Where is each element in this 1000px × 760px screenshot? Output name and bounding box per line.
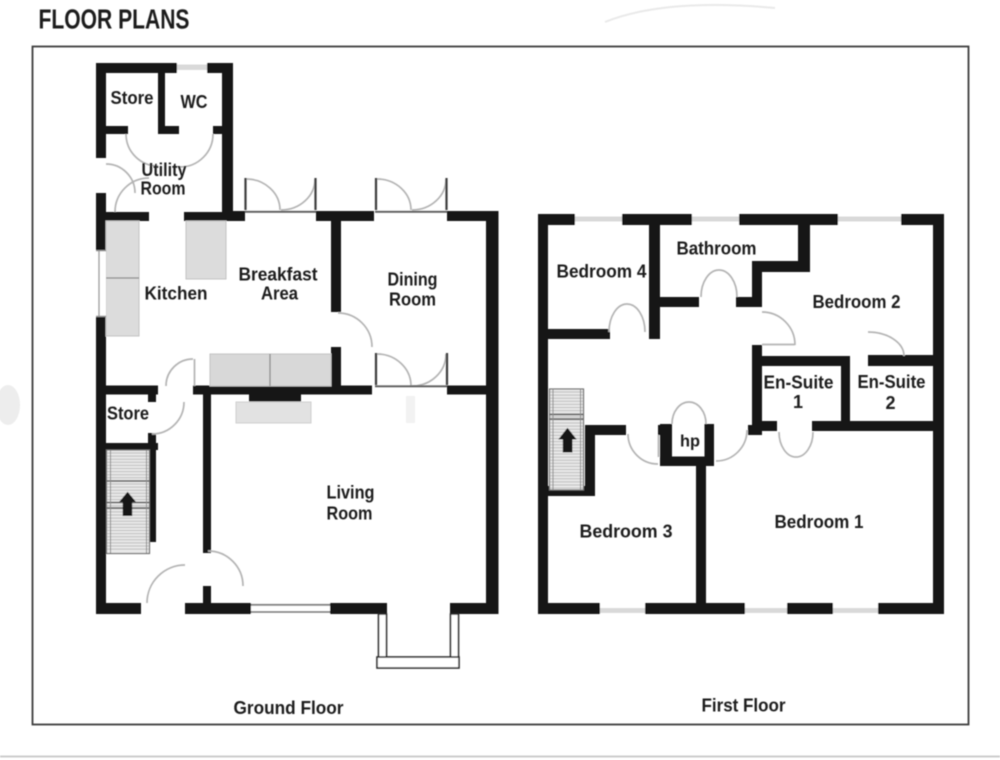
svg-text:Ground Floor: Ground Floor xyxy=(234,698,344,718)
svg-text:Area: Area xyxy=(261,284,299,304)
svg-text:hp: hp xyxy=(680,433,700,451)
svg-text:Bedroom 3: Bedroom 3 xyxy=(580,522,673,542)
svg-text:Bathroom: Bathroom xyxy=(677,239,757,259)
svg-text:FLOOR PLANS: FLOOR PLANS xyxy=(39,4,190,35)
svg-text:Room: Room xyxy=(389,290,436,310)
svg-text:WC: WC xyxy=(181,92,208,112)
svg-text:Dining: Dining xyxy=(388,270,438,290)
svg-text:Store: Store xyxy=(107,404,149,424)
svg-text:En-Suite: En-Suite xyxy=(764,373,834,393)
svg-text:Living: Living xyxy=(327,483,375,503)
svg-text:En-Suite: En-Suite xyxy=(858,372,926,392)
svg-text:Utility: Utility xyxy=(142,160,187,180)
svg-text:First Floor: First Floor xyxy=(702,696,786,716)
svg-text:Bedroom 2: Bedroom 2 xyxy=(813,292,901,312)
svg-text:2: 2 xyxy=(885,393,895,413)
svg-text:Bedroom 1: Bedroom 1 xyxy=(775,512,864,532)
svg-text:Bedroom 4: Bedroom 4 xyxy=(557,262,647,282)
svg-text:1: 1 xyxy=(793,392,803,412)
svg-text:Room: Room xyxy=(141,179,186,199)
svg-text:Store: Store xyxy=(111,88,154,108)
svg-text:Breakfast: Breakfast xyxy=(239,265,318,285)
svg-text:Room: Room xyxy=(327,504,373,524)
svg-text:Kitchen: Kitchen xyxy=(145,284,208,304)
